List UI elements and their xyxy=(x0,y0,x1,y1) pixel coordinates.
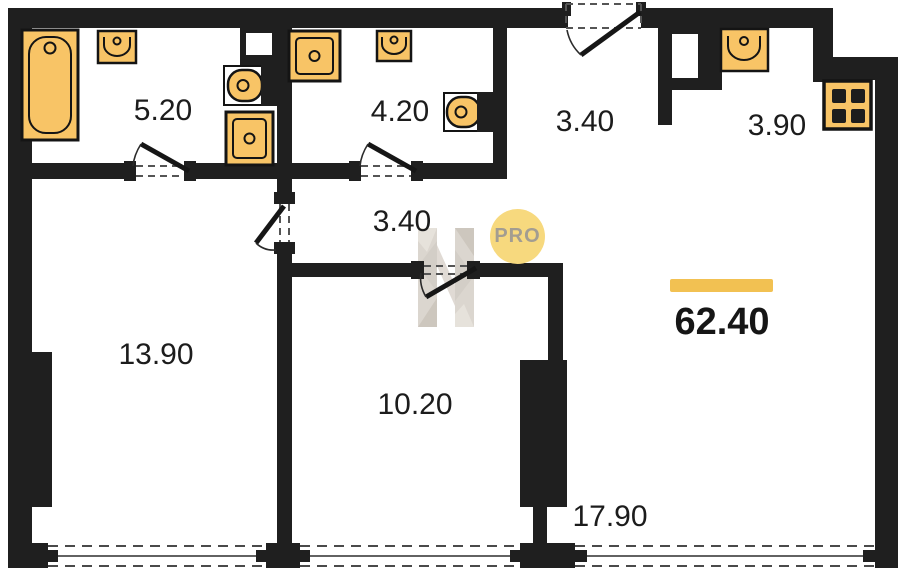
toilet-icon-2 xyxy=(444,92,493,132)
area-label-kitchen-niche: 3.90 xyxy=(748,111,806,141)
area-label-hallway: 3.40 xyxy=(556,107,614,137)
stove-icon xyxy=(824,81,871,129)
washing-machine-icon xyxy=(226,112,273,165)
pro-badge: PRO xyxy=(490,209,545,264)
door-bathroom xyxy=(133,144,189,176)
area-label-bathroom-2: 4.20 xyxy=(371,97,429,127)
area-label-room-left: 13.90 xyxy=(118,340,193,370)
washbasin-icon-2 xyxy=(377,31,411,61)
total-area-label: 62.40 xyxy=(674,303,769,341)
door-bathroom-2 xyxy=(360,144,416,176)
area-label-bathroom: 5.20 xyxy=(134,96,192,126)
area-label-corridor: 3.40 xyxy=(373,207,431,237)
kitchen-sink-icon xyxy=(721,29,768,71)
watermark-logo xyxy=(418,228,474,327)
shower-tray-icon xyxy=(289,31,340,81)
total-area-underline xyxy=(670,279,773,292)
bathtub-icon xyxy=(22,30,78,140)
entrance-door xyxy=(566,4,641,55)
washbasin-icon-1 xyxy=(98,31,136,63)
area-label-room-middle: 10.20 xyxy=(377,390,452,420)
pro-badge-label: PRO xyxy=(494,225,540,248)
toilet-icon-1 xyxy=(224,65,278,106)
floor-plan: 5.20 4.20 3.40 3.90 3.40 13.90 10.20 17.… xyxy=(0,0,900,571)
area-label-living-room: 17.90 xyxy=(572,502,647,532)
